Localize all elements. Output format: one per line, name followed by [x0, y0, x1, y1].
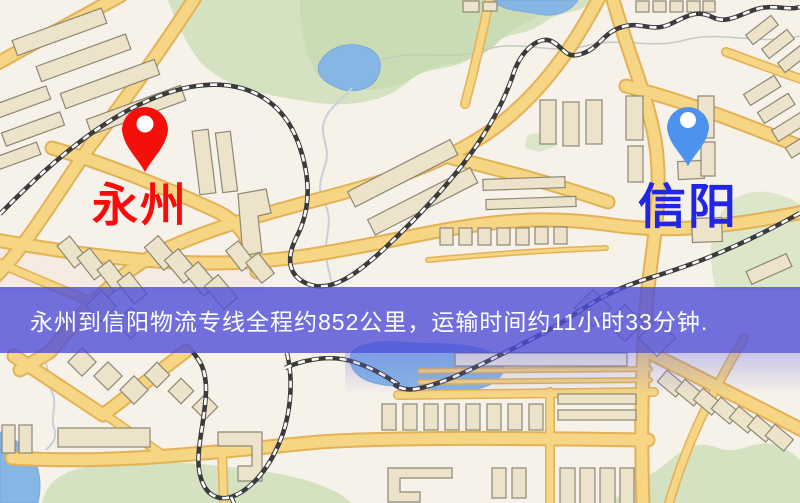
map-view[interactable]: 永州 信阳 永州到信阳物流专线全程约852公里，运输时间约11小时33分钟.: [0, 0, 800, 503]
route-info-banner: 永州到信阳物流专线全程约852公里，运输时间约11小时33分钟.: [0, 287, 800, 353]
origin-label[interactable]: 永州: [92, 179, 188, 231]
blue-pin-hole: [680, 112, 696, 128]
destination-label[interactable]: 信阳: [638, 181, 738, 234]
red-pin-hole: [137, 116, 154, 133]
route-info-text: 永州到信阳物流专线全程约852公里，运输时间约11小时33分钟.: [30, 303, 708, 337]
banner-shadow-tint: [345, 353, 800, 395]
map-artwork: 永州 信阳: [0, 0, 800, 503]
